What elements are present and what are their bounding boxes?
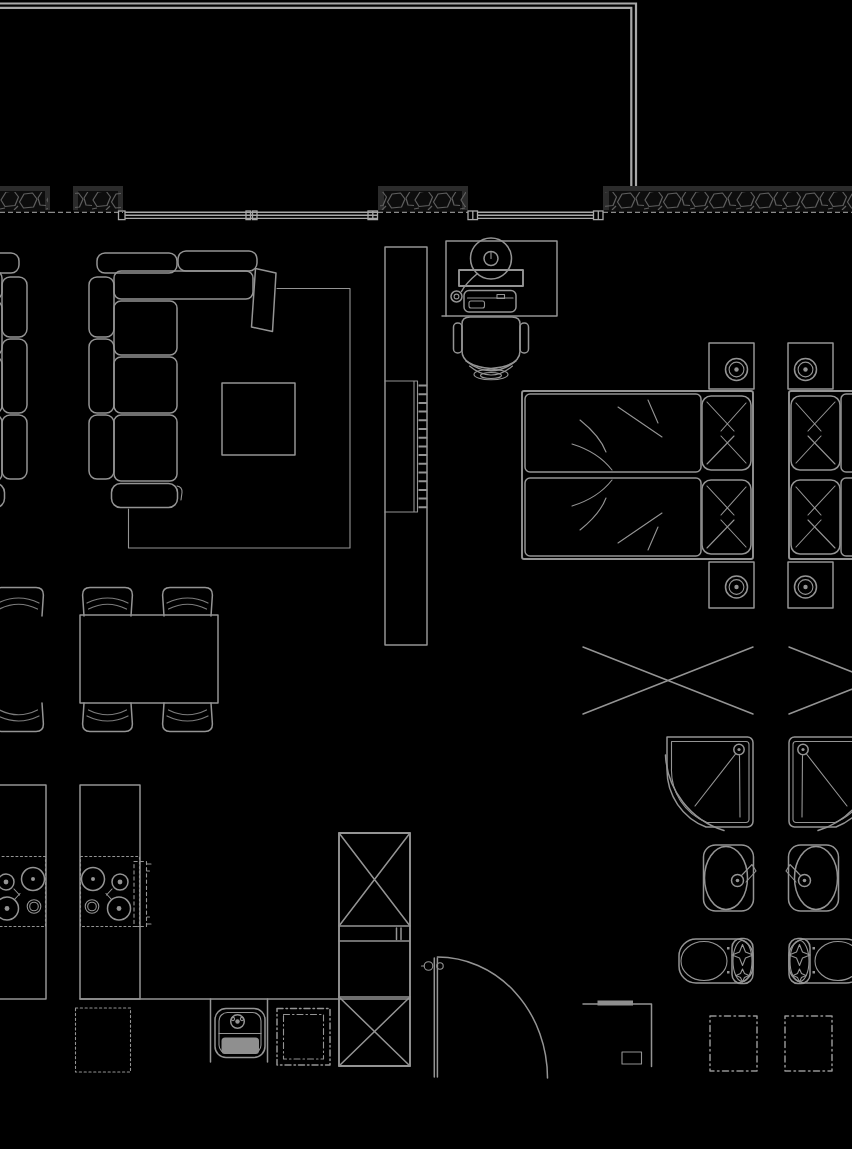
storage-cross <box>583 646 753 715</box>
left-unit-cooktop <box>0 856 46 927</box>
balcony-rail <box>0 3 637 187</box>
hotspot-layer <box>0 0 852 1149</box>
desk <box>446 241 557 316</box>
left-unit-counter <box>0 785 46 999</box>
desk-chair <box>453 317 529 380</box>
sectional-sofa <box>88 251 277 509</box>
table-lamp-lower <box>725 576 748 599</box>
nightstand-upper <box>709 343 754 389</box>
kitchen-counter <box>80 785 140 999</box>
dining-chair-bottom-right <box>162 703 213 733</box>
right-unit-nightstand-upper <box>788 343 833 389</box>
exterior-wall-left-b <box>73 186 123 213</box>
left-unit-sofa <box>0 251 28 508</box>
pillow-upper <box>702 396 751 470</box>
extractor-guide <box>134 861 147 927</box>
utility-niche <box>583 1000 652 1067</box>
left-unit-chair-top <box>0 586 44 616</box>
washing-machine <box>710 1016 757 1071</box>
area-rug <box>128 288 350 548</box>
kitchen-base-run <box>80 999 410 1066</box>
right-unit-washing-machine <box>785 1016 832 1071</box>
cooktop <box>80 856 140 927</box>
exterior-wall-left-a <box>0 186 50 213</box>
table-lamp-upper <box>725 358 748 381</box>
double-bed <box>522 391 753 559</box>
nightstand-lower <box>709 562 754 608</box>
coffee-table <box>222 383 295 455</box>
shower-tray <box>666 736 754 828</box>
left-unit-chair-bottom <box>0 703 44 733</box>
right-unit-bed <box>789 391 852 559</box>
dining-chair-top-right <box>162 586 213 616</box>
window-band-living <box>118 211 378 220</box>
wardrobe <box>385 247 427 645</box>
dining-chair-top-left <box>82 586 133 616</box>
desk-lamp <box>451 238 512 302</box>
right-unit-toilet <box>789 938 852 984</box>
right-unit-nightstand-lower <box>788 562 833 608</box>
entry-door <box>421 956 548 1078</box>
dining-chair-bottom-left <box>82 703 133 733</box>
toilet <box>679 938 753 984</box>
exterior-wall-mid <box>378 186 468 213</box>
laptop <box>464 290 516 312</box>
window-band-bedroom <box>468 211 603 220</box>
kitchen-sink <box>210 999 268 1062</box>
right-unit-storage-cross <box>789 646 852 715</box>
pillow-lower <box>702 480 751 554</box>
under-counter-appliance <box>75 1008 131 1072</box>
right-unit-shower <box>788 736 852 828</box>
dining-table <box>80 615 218 703</box>
tall-cabinet-fridge <box>339 833 410 1066</box>
washbasin <box>703 843 754 911</box>
built-in-oven <box>277 1008 330 1065</box>
exterior-wall-right <box>603 186 852 213</box>
right-unit-washbasin <box>788 843 839 911</box>
floor-plan-canvas <box>0 0 852 1149</box>
closet-hanger-rail <box>414 381 428 512</box>
